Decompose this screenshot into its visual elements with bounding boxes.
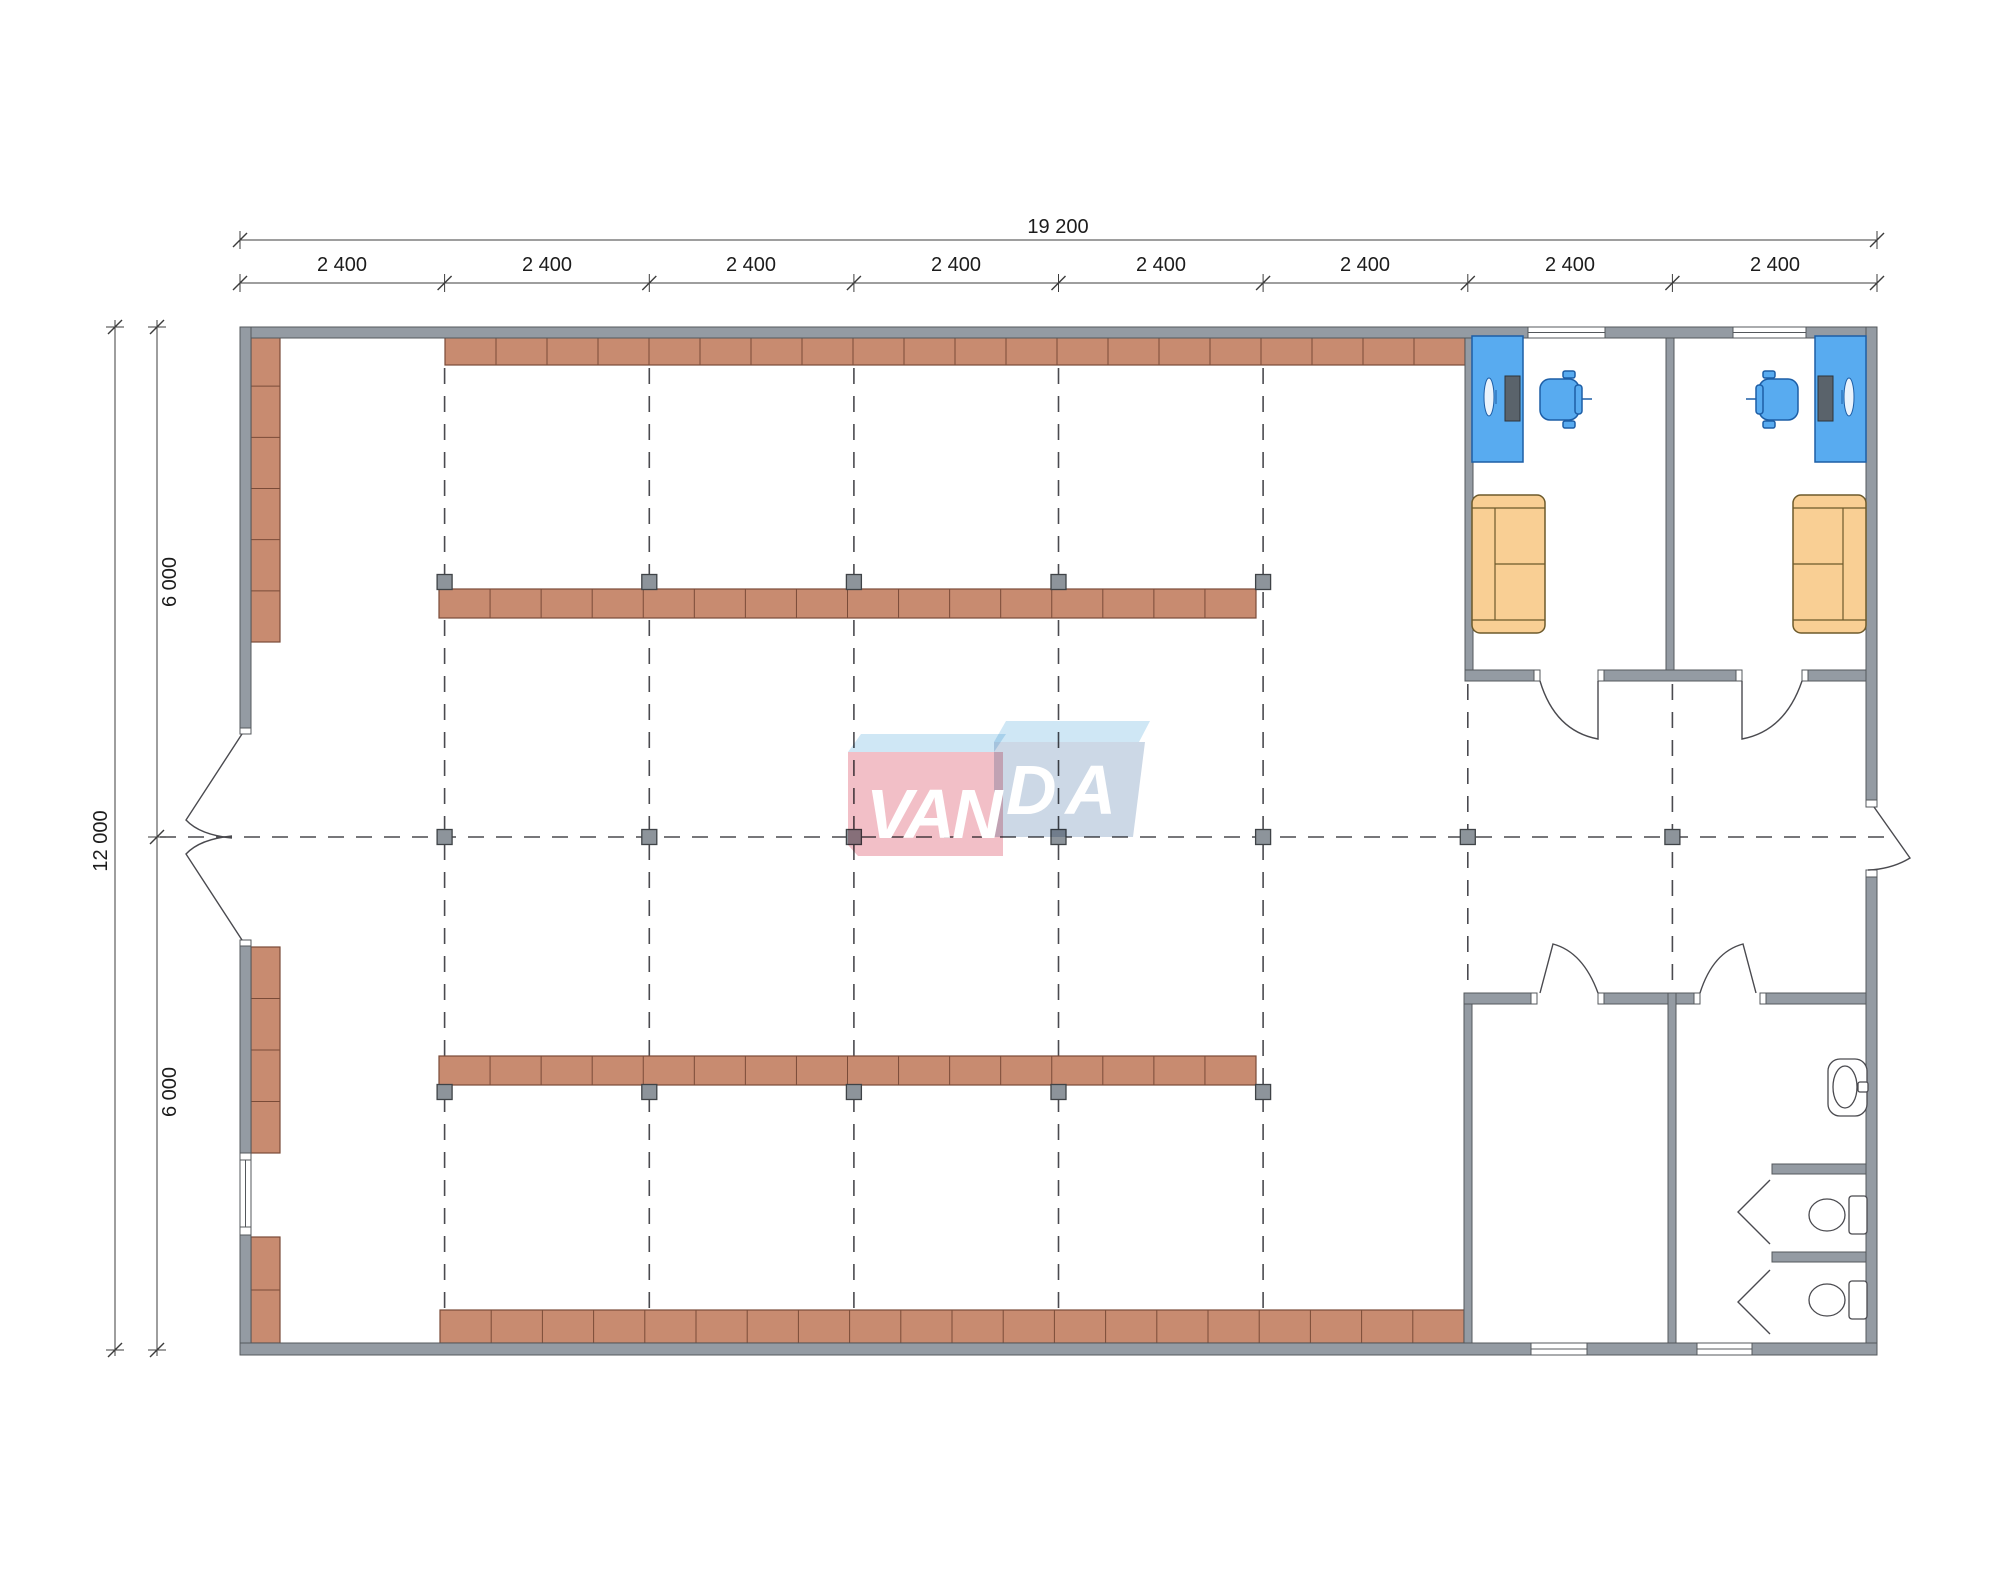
window-left-wall [240, 1153, 251, 1235]
logo-text-da: DA [1006, 751, 1125, 829]
keyboard-icon [1505, 376, 1520, 421]
svg-text:6 000: 6 000 [159, 557, 181, 607]
column-marker-square [1256, 1085, 1271, 1100]
wall-office-bottom-3 [1802, 670, 1866, 681]
office-1-furniture [1472, 336, 1592, 633]
floor-plan-page: 19 200 2 400 2 400 2 400 2 400 2 400 2 4… [0, 0, 2000, 1574]
wall-top-2 [1605, 327, 1733, 338]
office-2-furniture [1746, 336, 1866, 633]
column-marker-square [1256, 830, 1271, 845]
svg-text:2 400: 2 400 [1340, 254, 1390, 276]
dim-top-total-label: 19 200 [1027, 216, 1088, 238]
shelf-run [251, 947, 280, 1153]
column-marker-square [437, 830, 452, 845]
shelf-run [439, 589, 1256, 618]
storage-room-door [1540, 944, 1598, 993]
wall-bottom-1 [240, 1343, 1531, 1355]
office1-door [1540, 681, 1598, 739]
wall-office-bottom-1 [1465, 670, 1540, 681]
svg-text:2 400: 2 400 [931, 254, 981, 276]
keyboard-icon [1818, 376, 1833, 421]
wall-left-3 [240, 1235, 251, 1355]
sofa [1793, 495, 1866, 633]
column-marker-square [1051, 1085, 1066, 1100]
svg-text:2 400: 2 400 [726, 254, 776, 276]
toilet-stall-door-2 [1738, 1270, 1770, 1334]
shelf-run [251, 1237, 280, 1343]
toilet-1 [1809, 1196, 1867, 1234]
svg-text:2 400: 2 400 [522, 254, 572, 276]
window-bottom-storage [1531, 1343, 1587, 1355]
bathroom-fixtures [1809, 1059, 1868, 1319]
svg-text:2 400: 2 400 [1136, 254, 1186, 276]
column-marker-square [846, 1085, 861, 1100]
column-marker-square [1051, 575, 1066, 590]
column-marker-square [642, 1085, 657, 1100]
wall-bottom-3 [1752, 1343, 1877, 1355]
column-marker-square [1665, 830, 1680, 845]
bathroom-door [1700, 944, 1756, 993]
wall-room-left [1464, 993, 1472, 1343]
window-top-office1 [1528, 327, 1605, 338]
svg-text:2 400: 2 400 [1545, 254, 1595, 276]
floor-plan-canvas: 19 200 2 400 2 400 2 400 2 400 2 400 2 4… [0, 0, 2000, 1574]
monitor-icon [1844, 378, 1854, 416]
shelf-run [439, 1056, 1256, 1085]
column-marker-square [642, 830, 657, 845]
right-exit-door [1868, 807, 1910, 870]
wall-office-mid [1666, 338, 1674, 681]
wall-room-top-4 [1760, 993, 1866, 1004]
office2-door [1742, 681, 1802, 739]
svg-text:6 000: 6 000 [159, 1067, 181, 1117]
shelf-run [440, 1310, 1464, 1343]
column-marker-square [1460, 830, 1475, 845]
wall-room-top-1 [1464, 993, 1537, 1004]
toilet-stall-door-1 [1738, 1180, 1770, 1244]
svg-text:2 400: 2 400 [1750, 254, 1800, 276]
logo-flap-right [994, 721, 1150, 742]
wall-stall-2 [1772, 1252, 1866, 1262]
wall-top-1 [240, 327, 1528, 338]
svg-text:2 400: 2 400 [317, 254, 367, 276]
wall-right-2 [1866, 870, 1877, 1355]
dim-left-total-label: 12 000 [90, 810, 112, 871]
office-chair [1540, 371, 1592, 428]
logo-flap-left [848, 734, 1006, 752]
column-marker-square [642, 575, 657, 590]
office-chair [1746, 371, 1798, 428]
vanda-logo-watermark: VAN DA [848, 721, 1150, 856]
wall-bottom-2 [1587, 1343, 1697, 1355]
windows [240, 327, 1806, 1355]
logo-text-van: VAN [866, 775, 1004, 853]
shelf-run [251, 335, 280, 642]
wall-right-1 [1866, 327, 1877, 807]
window-bottom-bathroom [1697, 1343, 1752, 1355]
wall-room-mid [1668, 993, 1676, 1343]
monitor-icon [1484, 378, 1494, 416]
wall-left-2 [240, 940, 251, 1153]
column-marker-square [437, 1085, 452, 1100]
sofa [1472, 495, 1545, 633]
window-top-office2 [1733, 327, 1806, 338]
toilet-2 [1809, 1281, 1867, 1319]
wall-left-1 [240, 327, 251, 734]
column-marker-square [846, 575, 861, 590]
sink [1828, 1059, 1868, 1116]
wall-stall-1 [1772, 1164, 1866, 1174]
column-grid-dashed-lines [160, 368, 1895, 1308]
column-marker-square [1256, 575, 1271, 590]
wall-office-bottom-2 [1598, 670, 1742, 681]
shelf-run [445, 336, 1465, 365]
wall-room-top-2 [1598, 993, 1668, 1004]
column-marker-square [437, 575, 452, 590]
